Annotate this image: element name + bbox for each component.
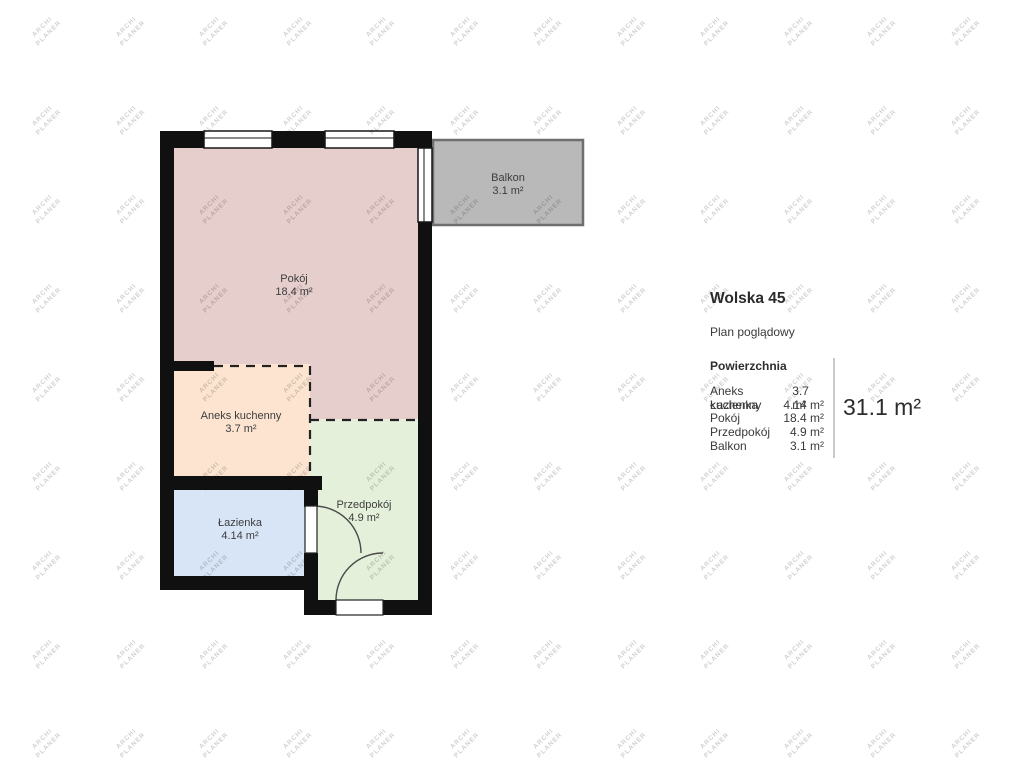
area-row-label: Aneks kuchenny	[710, 385, 792, 399]
room-balkon-area: 3.1 m²	[492, 185, 524, 197]
window-icon	[204, 131, 272, 148]
room-pokoj-label: Pokój	[280, 273, 308, 285]
room-balkon-label: Balkon	[491, 172, 525, 184]
area-table: Aneks kuchenny 3.7 m² Łazienka 4.14 m² P…	[710, 385, 824, 453]
floor-plan-drawing: Pokój 18.4 m² Balkon 3.1 m² Aneks kuchen…	[0, 0, 1024, 750]
page-title: Wolska 45	[710, 290, 786, 308]
area-row-label: Balkon	[710, 440, 747, 454]
area-row-label: Przedpokój	[710, 426, 770, 440]
area-row-label: Łazienka	[710, 399, 758, 413]
area-row-label: Pokój	[710, 412, 740, 426]
plan-subtitle: Plan poglądowy	[710, 325, 795, 339]
divider	[833, 358, 835, 458]
room-przedpokoj-label: Przedpokój	[336, 499, 391, 511]
room-aneks-area: 3.7 m²	[225, 423, 257, 435]
area-row: Pokój 18.4 m²	[710, 412, 824, 426]
wall-kitchen-stub	[174, 361, 214, 371]
entrance-door-icon	[336, 600, 383, 615]
area-row: Przedpokój 4.9 m²	[710, 426, 824, 440]
window-icon	[325, 131, 394, 148]
area-row-value: 18.4 m²	[783, 412, 824, 426]
wall-bathroom-hall-upper	[304, 490, 318, 507]
area-row: Łazienka 4.14 m²	[710, 399, 824, 413]
room-lazienka-label: Łazienka	[218, 517, 263, 529]
area-row-value: 3.1 m²	[790, 440, 824, 454]
room-aneks-label: Aneks kuchenny	[201, 410, 282, 422]
wall-kitchen-bathroom	[160, 476, 322, 490]
area-section-heading: Powierzchnia	[710, 359, 787, 373]
area-row: Balkon 3.1 m²	[710, 440, 824, 454]
floor-plan-page: Pokój 18.4 m² Balkon 3.1 m² Aneks kuchen…	[0, 0, 1024, 750]
room-przedpokoj-area: 4.9 m²	[348, 512, 380, 524]
room-pokoj-area: 18.4 m²	[275, 286, 313, 298]
balcony-door-icon	[418, 148, 432, 222]
wall-left	[160, 131, 174, 590]
bathroom-door-icon	[305, 506, 317, 553]
total-area: 31.1 m²	[843, 394, 921, 421]
area-row-value: 4.9 m²	[790, 426, 824, 440]
room-lazienka-area: 4.14 m²	[221, 530, 259, 542]
area-row-value: 3.7 m²	[792, 385, 824, 399]
wall-bathroom-bottom	[160, 576, 307, 590]
area-row: Aneks kuchenny 3.7 m²	[710, 385, 824, 399]
area-row-value: 4.14 m²	[783, 399, 824, 413]
